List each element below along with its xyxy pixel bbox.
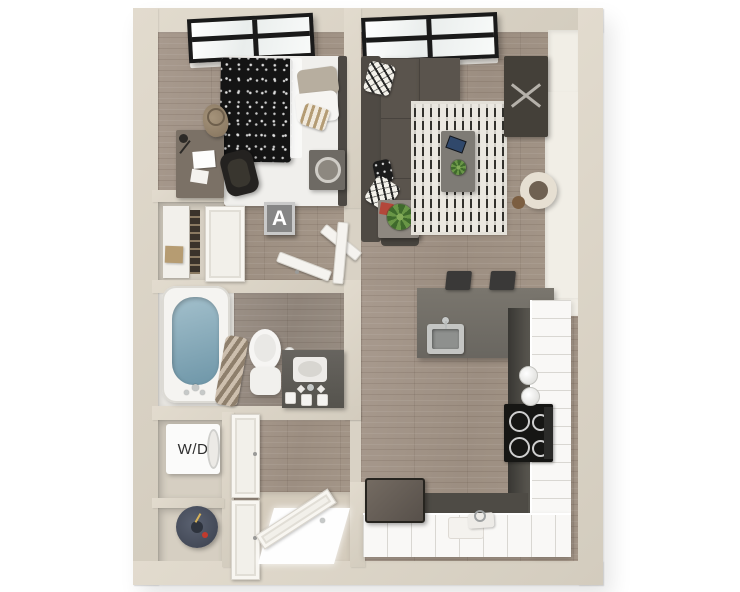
bar-stool xyxy=(489,271,516,290)
linen-shelf xyxy=(163,206,189,278)
washer-door-icon xyxy=(207,429,220,469)
window-mullion-icon xyxy=(192,31,310,42)
hall-closet-door-lower xyxy=(231,500,260,580)
living-room-window xyxy=(361,12,499,64)
vanity-sink-basin xyxy=(298,361,322,377)
coffee-table-plant-icon xyxy=(451,160,466,175)
desk-nook xyxy=(548,30,578,92)
floor-basket xyxy=(520,172,557,209)
door-knob-icon xyxy=(253,452,257,456)
toilet-tank xyxy=(250,367,281,395)
toilet-lid xyxy=(254,334,276,362)
wall-closet-mid xyxy=(152,498,224,508)
tub-handle-icon xyxy=(184,390,189,395)
wall-right xyxy=(578,8,603,585)
side-table-plant-icon xyxy=(387,204,413,230)
bathtub-water xyxy=(172,297,219,385)
stove-burner-icon xyxy=(509,411,530,432)
unit-label-badge: A xyxy=(264,202,295,235)
hall-closet-door-upper xyxy=(231,414,260,498)
kitchen-faucet-icon xyxy=(474,510,486,522)
bar-stool xyxy=(445,271,472,290)
island-faucet-stem xyxy=(445,321,447,329)
tub-faucet-icon xyxy=(192,384,199,391)
bag-strap xyxy=(207,108,225,126)
closet-door xyxy=(205,206,245,282)
wall-bathroom-east xyxy=(344,280,361,420)
canister-icon xyxy=(519,366,538,385)
toiletry-bottle-icon xyxy=(301,394,312,406)
washer-dryer-label: W/D xyxy=(178,441,209,458)
refrigerator xyxy=(365,478,425,523)
oven-door-edge xyxy=(544,407,553,459)
linen-shelf-slats xyxy=(190,210,200,274)
bed-duvet xyxy=(219,57,293,162)
island-sink-basin xyxy=(432,329,459,349)
stove-burner-icon xyxy=(509,437,530,458)
wall-bottom xyxy=(133,561,603,585)
toiletry-bottle-icon xyxy=(285,392,296,404)
storage-box xyxy=(165,246,184,264)
desk-paper xyxy=(190,169,209,184)
desk-paper xyxy=(192,150,215,169)
water-heater-valve-icon xyxy=(202,532,208,538)
door-handle-icon xyxy=(295,270,299,274)
floorplan-canvas: W/D A xyxy=(0,0,740,592)
water-heater-core xyxy=(191,521,203,533)
vanity-faucet-icon xyxy=(307,384,314,391)
toiletry-bottle-icon xyxy=(317,394,328,406)
entry-door-knob-icon xyxy=(320,518,325,523)
nightstand-decor-icon xyxy=(315,157,341,183)
canister-icon xyxy=(521,387,540,406)
tub-handle-icon xyxy=(200,390,205,395)
unit-label-text: A xyxy=(272,207,287,230)
basket-ball xyxy=(512,196,525,209)
